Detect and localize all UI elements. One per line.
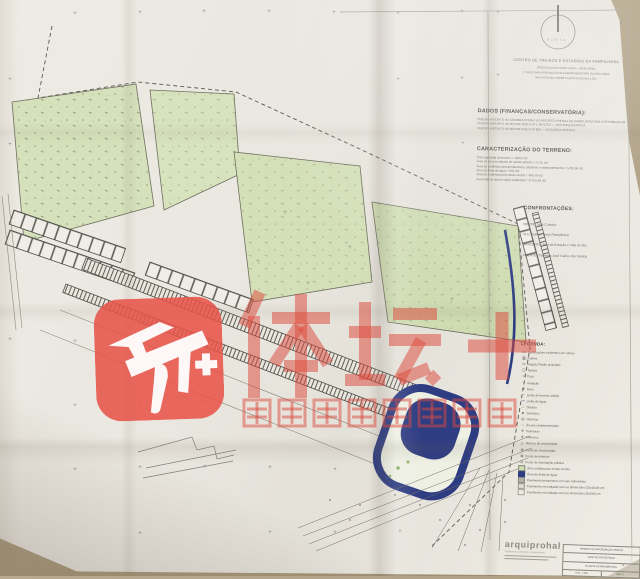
legend-label: Área da linha de água	[527, 472, 557, 477]
grid-cross: +	[348, 245, 352, 251]
grid-cross: +	[460, 9, 464, 15]
legend-symbol	[518, 471, 525, 477]
legend-label: Silvado	[526, 405, 536, 409]
legend-symbol	[518, 483, 525, 489]
grid-cross: +	[138, 401, 142, 407]
legend-label: Área cedida para zonas verdes	[527, 466, 570, 471]
grid-cross: +	[398, 529, 402, 535]
info-panel: NORTE CENTRO DE TREINOS E ESTÁGIOS DA PA…	[459, 0, 640, 543]
legend-label: Muro	[527, 387, 534, 391]
photo-of-site-plan: { "watermark": { "icon_name": "tiyu-tan-…	[0, 0, 640, 576]
grid-cross: +	[332, 10, 336, 16]
section-legenda: LEGENDA: ▭Construções existentes em ruín…	[518, 341, 633, 498]
sheet-header: CENTRO DE TREINOS E ESTÁGIOS DA PAMPILHO…	[498, 57, 633, 83]
legend-symbol	[518, 465, 525, 471]
legend-label: Linha de terreno cedido	[527, 393, 560, 398]
grid-cross: +	[256, 259, 260, 265]
grid-cross: +	[8, 337, 12, 343]
legend-list: ▭Construções existentes em ruínas▥Ruínas…	[518, 349, 633, 498]
fold-mark-top-right: 1	[620, 20, 622, 25]
grid-cross: +	[267, 9, 271, 15]
title-block-table: PEDIDO DE INFORMAÇÃO PRÉVIACENTRO DE EST…	[562, 544, 640, 579]
grid-cross: +	[283, 210, 287, 216]
fold-mark-bottom-right: 4	[622, 562, 624, 567]
grid-cross: +	[73, 403, 77, 409]
legend-label: Regato Pavão projetado	[527, 363, 560, 368]
legend-label: Árvores indeterminadas	[526, 423, 559, 428]
grid-cross: +	[268, 530, 272, 536]
legend-label: Palmeiras	[526, 430, 540, 434]
grid-cross: +	[306, 281, 310, 287]
grid-cross: +	[450, 297, 454, 303]
grid-cross: +	[8, 77, 12, 83]
grid-cross: +	[333, 530, 337, 536]
legend-symbol	[518, 477, 525, 483]
legend-item: Pavimento em calçada com as dimensões (5…	[518, 489, 630, 497]
legend-label: Tanque	[527, 369, 537, 373]
grid-cross: +	[73, 467, 77, 473]
legend-label: Pinheiros	[526, 436, 539, 440]
grid-cross: +	[8, 142, 12, 148]
terreno-title: CARACTERIZAÇÃO DO TERRENO:	[477, 146, 637, 155]
green-parcels	[12, 84, 526, 342]
dados-title: DADOS (FINANÇAS/CONSERVATÓRIA):	[478, 108, 638, 117]
grid-cross: +	[203, 400, 207, 406]
legend-label: Vedação	[527, 381, 539, 385]
legend-label: Linha de água	[527, 399, 547, 403]
legend-label: Poste de iluminação pública	[525, 460, 564, 465]
grid-cross: +	[203, 464, 207, 470]
north-label: NORTE	[539, 37, 575, 42]
section-sketch	[138, 437, 236, 478]
grid-cross: +	[138, 465, 142, 471]
legend-label: Poço	[527, 375, 534, 379]
grid-cross: +	[268, 465, 272, 471]
grid-cross: +	[138, 531, 142, 537]
legend-label: Marcos de propriedade	[526, 442, 558, 447]
sheet-number-cell: DES. 1	[600, 572, 639, 578]
confrontacao-line: POENTE: Travessa José Carlos dos Santos	[523, 250, 635, 263]
confrontacoes-title: CONFRONTAÇÕES:	[524, 205, 636, 213]
grid-cross: +	[461, 141, 465, 147]
grid-cross: +	[202, 9, 206, 15]
legend-symbol	[518, 490, 525, 496]
legend-label: Sobreiros	[526, 411, 539, 415]
grid-cross: +	[396, 77, 400, 83]
legenda-title: LEGENDA:	[521, 341, 633, 348]
legend-label: Oliveiras	[526, 417, 538, 421]
grid-cross: +	[73, 11, 77, 17]
grid-cross: +	[396, 11, 400, 17]
section-dados: DADOS (FINANÇAS/CONSERVATÓRIA): PRÉDIO I…	[477, 108, 637, 133]
grid-cross: +	[460, 76, 464, 82]
legend-label: Pavimento em calçada com as dimensões (5…	[527, 490, 601, 496]
grid-cross: +	[333, 467, 337, 473]
grid-cross: +	[73, 339, 77, 345]
legend-label: Poste de telefone	[525, 454, 549, 459]
legend-label: Poste de electricidade	[526, 448, 557, 453]
legend-label: Ruínas	[527, 356, 537, 360]
section-confrontacoes: CONFRONTAÇÕES: NORTE: José CurinhaSUL: R…	[523, 205, 636, 262]
section-terreno: CARACTERIZAÇÃO DO TERRENO: Área registad…	[476, 146, 637, 184]
grid-cross: +	[138, 10, 142, 16]
